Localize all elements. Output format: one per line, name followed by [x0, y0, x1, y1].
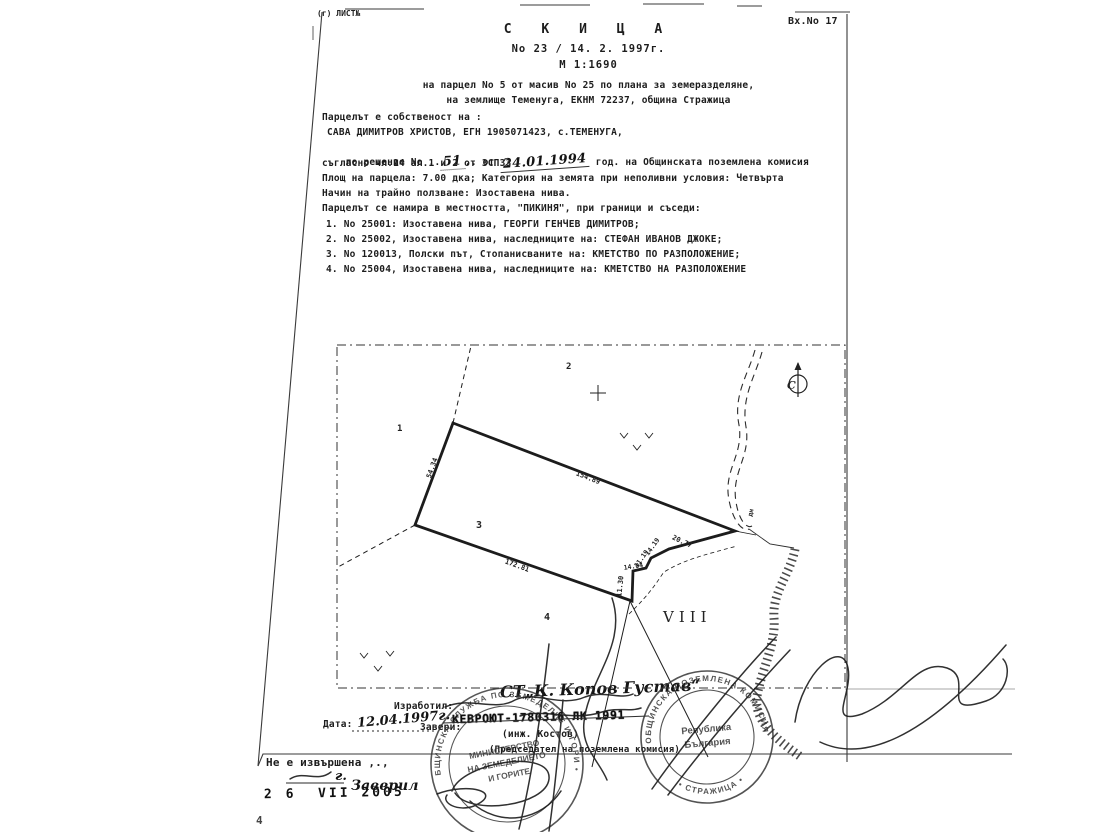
dimension-south: 172.81 [504, 558, 531, 574]
neighbor-parcel-label: 4 [544, 612, 550, 623]
owner-name: САВА ДИМИТРОВ ХРИСТОВ, ЕГН 1905071423, с… [327, 127, 623, 139]
scale-line: М 1:1690 [330, 59, 847, 72]
river-road [728, 350, 801, 757]
river-line [728, 350, 755, 530]
stamp-center-line: България [684, 736, 731, 751]
dimension-step: 14.04 [623, 561, 644, 572]
stamp-ring-text-bottom: • СТРАЖИЦА • [676, 774, 746, 799]
hand-note-map: СТ„К. Копов Густав“ [500, 676, 701, 702]
region-label: VIII [662, 608, 712, 626]
signature-stroke [668, 650, 790, 795]
scanned-sketch-document: (г) ЛИСТ№ Вх.No 17 С К И Ц А No 23 / 14.… [0, 0, 1109, 832]
signature-stroke [437, 789, 486, 808]
parcel-boundary [415, 423, 735, 601]
neighbor-parcel-label: 2 [566, 362, 571, 372]
sheet-corner-note: (г) ЛИСТ№ [317, 9, 360, 19]
river-link [749, 529, 794, 548]
subject-line-1: на парцел No 5 от масив No 25 по плана з… [330, 80, 847, 92]
document-title: С К И Ц А [330, 22, 847, 38]
river-line [735, 352, 762, 527]
page-top-dashes [345, 4, 850, 12]
map-symbols [360, 362, 807, 671]
decision-date-handwritten: 24.01.1994 [500, 151, 590, 173]
signature-stroke [652, 637, 776, 789]
legal-basis: съгласно чл.14 ал.1 и 2 от ЗСПЗЗ [322, 158, 511, 170]
license-stamp-text: КЕВРОЮТ-1780316 ЛК 1991 [452, 708, 625, 727]
cadastral-dashed-line [338, 525, 415, 567]
signature-stroke [470, 791, 561, 818]
page-left-edge [258, 12, 322, 766]
signature-stroke [452, 761, 549, 805]
signature-stroke [820, 645, 1006, 749]
north-letter: С [787, 379, 796, 392]
neighbor-parcel-label: 1 [397, 424, 402, 434]
north-arrow-icon [789, 375, 807, 393]
stamp-ministry: • ОБЩИНСКА СЛУЖБА ПО ЗЕМЕДЕЛИЕ И ГОРИ • … [0, 0, 593, 832]
cadastral-dashed-line [453, 346, 471, 423]
stamp-center-line: И ГОРИТЕ [487, 766, 531, 784]
stamp-center-line: Република [681, 722, 732, 737]
boundary-link [735, 531, 756, 535]
north-arrow-head [795, 362, 802, 370]
decision-post: год. на Общинската поземлена комисия [590, 157, 809, 168]
dimension-step: 14.19 [644, 536, 662, 557]
corridor-dashed-line [629, 546, 737, 614]
stamp-center-text: Република България [681, 722, 734, 751]
neighbor-item: 3. No 120013, Полски път, Стопанисваните… [326, 249, 740, 261]
dimension-north: 154.89 [575, 469, 601, 486]
dimension-step: 11.19 [633, 548, 651, 569]
prepared-by-role: (Председател на поземлена комисия) [489, 745, 680, 756]
hatched-road-band [757, 549, 801, 757]
owner-intro: Парцелът е собственост на : [322, 112, 482, 124]
neighbor-item: 1. No 25001: Изоставена нива, ГЕОРГИ ГЕН… [326, 219, 640, 231]
note-not-performed: Не е извършена ,., [266, 756, 389, 770]
subject-line-2: на землище Теменуга, ЕКНМ 72237, община … [330, 95, 847, 107]
stamp-inner-circle [656, 686, 758, 788]
prepared-by-name: (инж. Костов) [502, 729, 579, 741]
dimension-west: 54.34 [425, 457, 440, 480]
location-line: Парцелът се намира в местността, "ПИКИНЯ… [322, 203, 701, 215]
vegetation-marks [360, 433, 653, 671]
stamp-ring-text: • ОБЩИНСКА СЛУЖБА ПО ЗЕМЕДЕЛИЕ И ГОРИ • [0, 0, 583, 832]
date-label: Дата: [323, 719, 353, 731]
certified-label: Заверил [351, 778, 418, 794]
note-hand-suffix: г. [335, 769, 347, 784]
usage-line: Начин на трайно ползване: Изоставена нив… [322, 188, 571, 200]
neighbor-item: 2. No 25002, Изоставена нива, наследници… [326, 234, 723, 246]
verify-label: Завери: [420, 722, 461, 734]
map-frame [337, 345, 845, 688]
neighbor-item: 4. No 25004, Изоставена нива, наследници… [326, 264, 746, 276]
dimension-step: 11.30 [615, 575, 625, 597]
dimension-step: 20.77 [671, 534, 693, 550]
area-category-line: Площ на парцела: 7.00 дка; Категория на … [322, 173, 784, 185]
map-and-marks-layer: С 1 2 3 4 VIII 54.34 154.89 172.81 11.30… [0, 0, 1109, 832]
grid-cross [590, 385, 606, 401]
river-label: дн [746, 508, 755, 517]
signature-stroke [795, 657, 1007, 722]
signature-stroke [290, 772, 331, 779]
parcel-number-label: 3 [476, 520, 482, 531]
sketch-number-line: No 23 / 14. 2. 1997г. [330, 43, 847, 56]
pencil-mark: 4 [256, 814, 263, 827]
